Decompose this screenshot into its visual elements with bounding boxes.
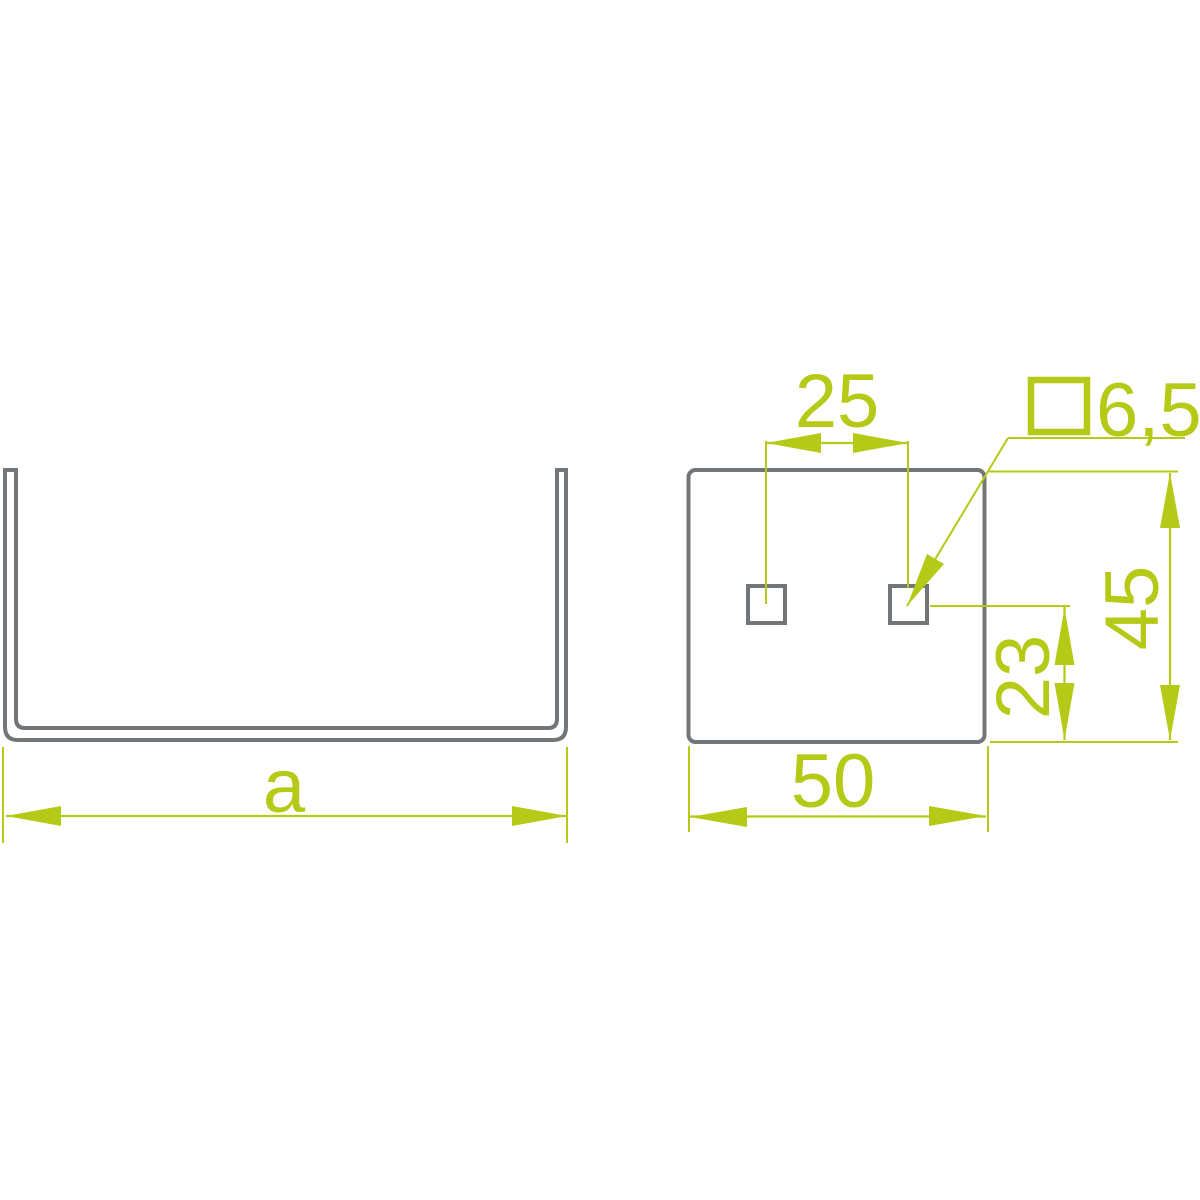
side-view-plate: 25 6,5 23 50: [689, 359, 1200, 832]
hole-size-label: 6,5: [1096, 368, 1200, 453]
square-symbol-icon: [1031, 380, 1087, 432]
drawing-canvas: a 25 6,5 23: [0, 0, 1200, 1200]
dim-50-arrow-right-icon: [929, 806, 986, 826]
dimension-23: 23: [981, 607, 1075, 740]
front-view-u-channel: a: [3, 470, 567, 843]
dim-a-arrow-right-icon: [512, 806, 567, 826]
technical-drawing: a 25 6,5 23: [0, 0, 1200, 1200]
dim-50-label: 50: [791, 739, 876, 824]
dim-25-label: 25: [795, 359, 880, 444]
dim-a-arrow-left-icon: [6, 806, 61, 826]
dimension-50: 50: [689, 739, 988, 832]
dim-45-arrow-bottom-icon: [1160, 685, 1180, 740]
dim-50-arrow-left-icon: [690, 807, 747, 827]
dim-a-label: a: [263, 744, 306, 829]
dim-45-label: 45: [1090, 566, 1175, 651]
dim-23-label: 23: [981, 635, 1066, 720]
u-channel-outline: [5, 470, 566, 740]
dim-45-arrow-top-icon: [1160, 473, 1180, 528]
dimension-a: a: [3, 744, 567, 843]
